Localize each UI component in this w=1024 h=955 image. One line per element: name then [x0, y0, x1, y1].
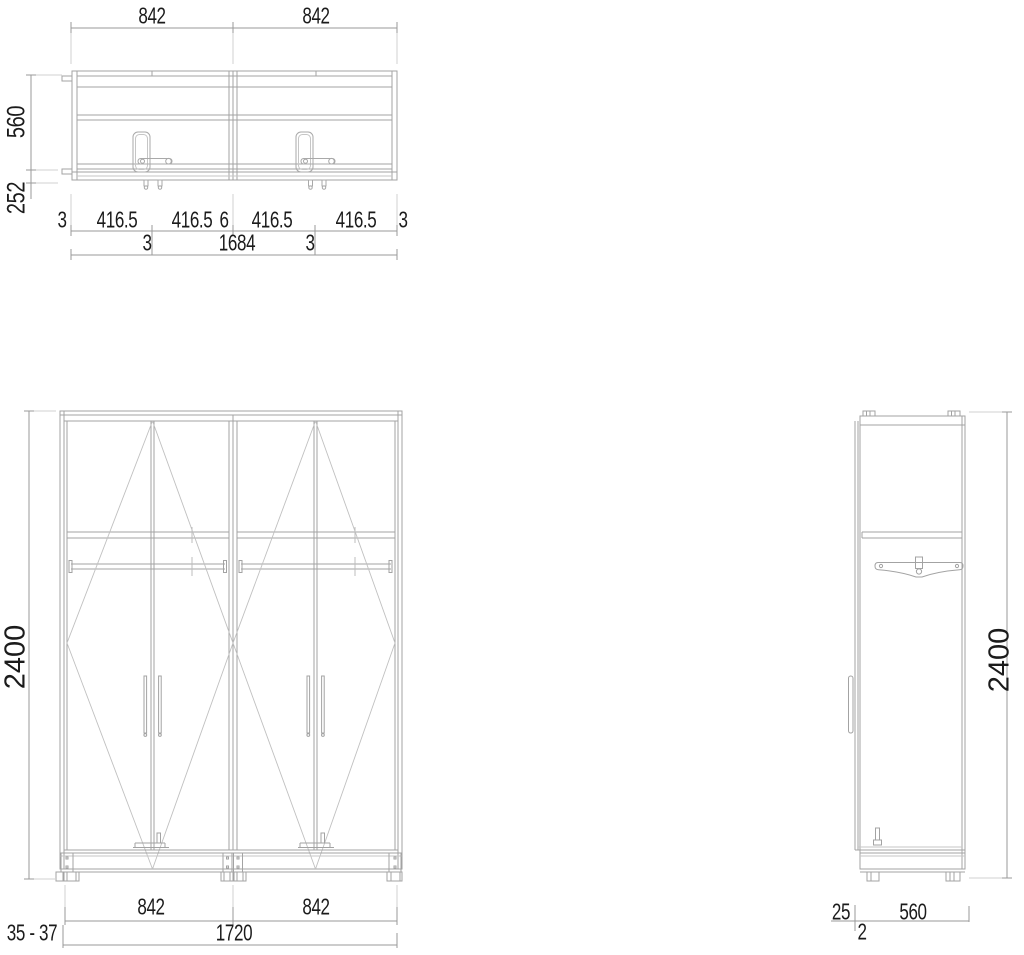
door-handles	[144, 676, 324, 736]
adjustable-feet	[56, 872, 402, 881]
technical-drawing-canvas: 842 842 560 252 3 416.5 416.5 6 416.5 41…	[0, 0, 1024, 955]
dim-top-width-right: 842	[302, 5, 329, 28]
side-view-fittings	[849, 557, 964, 733]
dim-side-door-thickness: 25	[832, 901, 850, 924]
dim-side-height: 2400	[986, 628, 1015, 693]
dim-top-door-clearance: 252	[5, 182, 30, 214]
wall-bracket-tab	[62, 169, 72, 174]
dim-top-row1-2: 416.5	[172, 209, 213, 232]
dim-front-door-width-right: 842	[302, 896, 329, 919]
dim-top-depth: 560	[5, 106, 30, 138]
shelf-line	[67, 527, 395, 543]
dim-top-total-width: 1684	[219, 232, 255, 255]
wall-bracket-tab	[62, 76, 72, 81]
dim-top-row1-0: 3	[57, 209, 66, 232]
base-plinth-side	[855, 847, 965, 881]
dim-front-foot-height: 35 - 37	[7, 922, 57, 945]
clothes-rail	[69, 557, 392, 576]
floor-fixing-pin	[874, 828, 882, 845]
door-hinge-tabs	[144, 180, 326, 189]
front-view-drawing	[60, 411, 402, 869]
dim-top-row1-1: 416.5	[97, 209, 138, 232]
top-view-drawing	[62, 71, 397, 180]
dim-top-row1-5: 416.5	[336, 209, 377, 232]
rail-bracket	[875, 557, 963, 577]
door-handle-side	[849, 676, 854, 733]
dim-side-gap: 2	[857, 921, 866, 944]
top-fixing-tabs	[863, 411, 960, 416]
dim-front-door-width-left: 842	[137, 896, 164, 919]
dim-top-row1-4: 416.5	[252, 209, 293, 232]
drawing-svg	[0, 0, 1024, 955]
shelf-line-side	[862, 532, 962, 538]
door-swing-lines	[67, 421, 395, 869]
dim-front-total-width: 1720	[216, 922, 252, 945]
side-view-drawing	[855, 411, 965, 881]
dim-top-gap-right: 3	[305, 232, 314, 255]
dim-side-depth: 560	[899, 901, 926, 924]
top-view-fittings	[133, 132, 335, 189]
dim-top-gap-left: 3	[142, 232, 151, 255]
dim-top-row1-3: 6	[219, 209, 228, 232]
dim-front-height: 2400	[2, 625, 31, 690]
dim-top-row1-6: 3	[398, 209, 407, 232]
dim-top-width-left: 842	[138, 5, 165, 28]
